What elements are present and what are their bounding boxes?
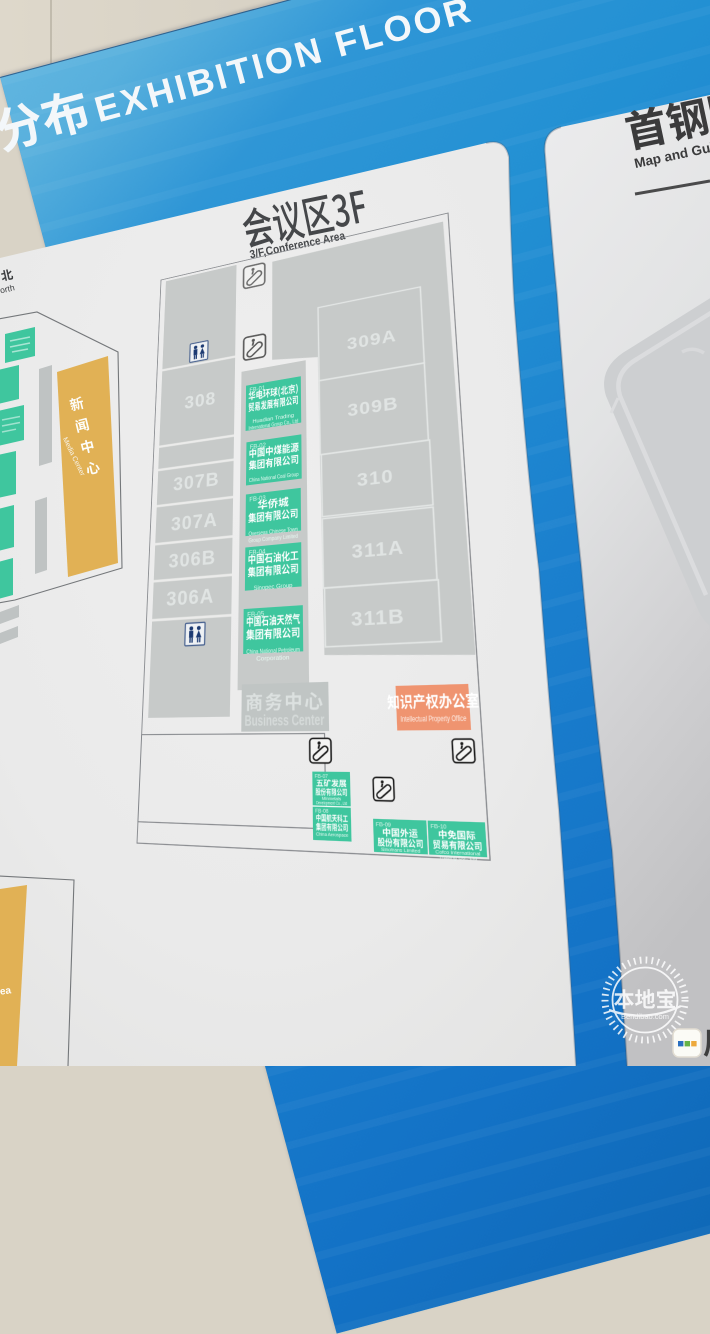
svg-text:306B: 306B xyxy=(168,547,216,573)
svg-text:FB-07: FB-07 xyxy=(315,773,329,780)
svg-text:311A: 311A xyxy=(351,535,404,562)
svg-text:Business Center: Business Center xyxy=(244,713,324,731)
svg-text:306A: 306A xyxy=(166,585,215,611)
svg-text:China Aerospace: China Aerospace xyxy=(316,831,349,839)
svg-text:Development Co., Ltd: Development Co., Ltd xyxy=(316,800,347,807)
svg-text:Map and Guide: Map and Guide xyxy=(633,136,710,171)
svg-text:Corporation: Corporation xyxy=(256,653,290,662)
svg-text:310: 310 xyxy=(357,464,395,490)
svg-text:FB-08: FB-08 xyxy=(315,808,329,815)
svg-text:Intellectual Property Office: Intellectual Property Office xyxy=(400,714,467,724)
svg-text:Trading Co., Ltd: Trading Co., Ltd xyxy=(439,853,478,862)
svg-text:311B: 311B xyxy=(351,604,406,631)
svg-text:FB-10: FB-10 xyxy=(430,823,446,830)
svg-text:FB-09: FB-09 xyxy=(376,821,392,828)
svg-text:Sinotrans Limited: Sinotrans Limited xyxy=(381,846,421,855)
svg-text:Media Center: Media Center xyxy=(61,436,86,477)
svg-text:Bendibao.com: Bendibao.com xyxy=(621,1012,669,1021)
